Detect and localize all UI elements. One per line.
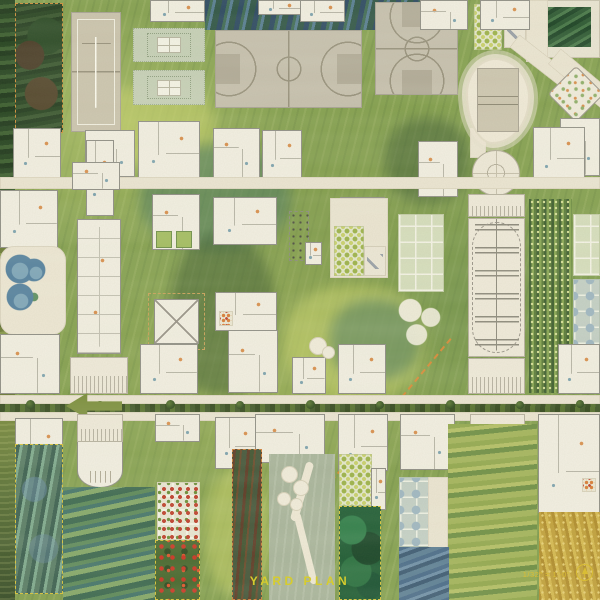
house-plan [138, 121, 200, 178]
house-plan [262, 130, 302, 180]
building-fragment [150, 0, 205, 22]
hedge-tree [166, 400, 175, 409]
yard-plan-canvas: YARD PLAN 1/32" = 1'-0" [0, 0, 600, 600]
scale-note: 1/32" = 1'-0" [500, 570, 570, 579]
painted-meadow [399, 547, 449, 600]
pergola-building [70, 357, 128, 394]
plan-title: YARD PLAN [220, 574, 380, 588]
hedge-tree [376, 401, 384, 409]
house-plan [533, 127, 585, 182]
allotment-grid [398, 214, 444, 292]
building-fragment [300, 0, 345, 22]
lawn-panel [133, 70, 205, 105]
pavilion [154, 299, 199, 344]
house-plan [538, 414, 600, 513]
building-fragment [258, 0, 304, 15]
tree-canopies [394, 293, 448, 351]
house-plan [155, 414, 200, 442]
basketball-court [215, 30, 362, 108]
poppy-field [155, 540, 200, 600]
flower-bed-grid [157, 482, 200, 540]
house-plan [228, 330, 278, 393]
building-fragment [305, 242, 322, 265]
curved-court-building [77, 442, 123, 488]
iris-field [15, 444, 63, 594]
fenced-grove [15, 3, 63, 133]
hedge-tree [576, 400, 584, 408]
house-plan [213, 197, 277, 245]
house-plan [480, 0, 530, 30]
tennis-court [71, 12, 121, 132]
building-fragment [371, 468, 386, 510]
community-building [77, 219, 121, 354]
hedge-tree [516, 401, 524, 409]
hedge-tree [236, 401, 244, 409]
circular-plaza [472, 150, 520, 196]
row-building [468, 218, 525, 357]
house-plan [558, 344, 600, 394]
painted-band [0, 400, 15, 600]
paved-pad [277, 492, 291, 506]
pergola-building [77, 414, 123, 442]
north-arrow-icon [576, 564, 593, 581]
allotment-grid-blue [573, 279, 600, 345]
hedge-tree [26, 400, 35, 409]
house-plan [213, 128, 260, 179]
volleyball-court [477, 68, 519, 132]
wheat-field [539, 512, 600, 600]
hedge-tree [446, 400, 455, 409]
house-plan [338, 344, 386, 394]
house-plan [420, 0, 468, 30]
swimming-pools [0, 246, 66, 335]
house-plan [400, 414, 455, 470]
house-plan [292, 357, 326, 394]
orchard-plot [334, 226, 364, 276]
house-plan [72, 162, 120, 190]
house-plan [140, 344, 198, 394]
house-plan [0, 190, 58, 248]
flower-patch [219, 311, 233, 326]
hedge-tree [306, 400, 315, 409]
lawn-panel [133, 28, 205, 62]
paved-pad [290, 498, 303, 511]
pergola-building [468, 358, 525, 394]
garden-beds [154, 229, 194, 250]
paved-pad [322, 346, 335, 359]
house-plan [13, 128, 61, 178]
flower-patch [582, 478, 596, 492]
allotment-grid [573, 214, 600, 276]
sun-terrace [364, 246, 386, 276]
paved-pad [293, 480, 309, 496]
orchard-plot [339, 454, 372, 506]
pergola-building [468, 194, 525, 217]
house-plan [0, 334, 60, 394]
painted-meadow [63, 487, 155, 600]
